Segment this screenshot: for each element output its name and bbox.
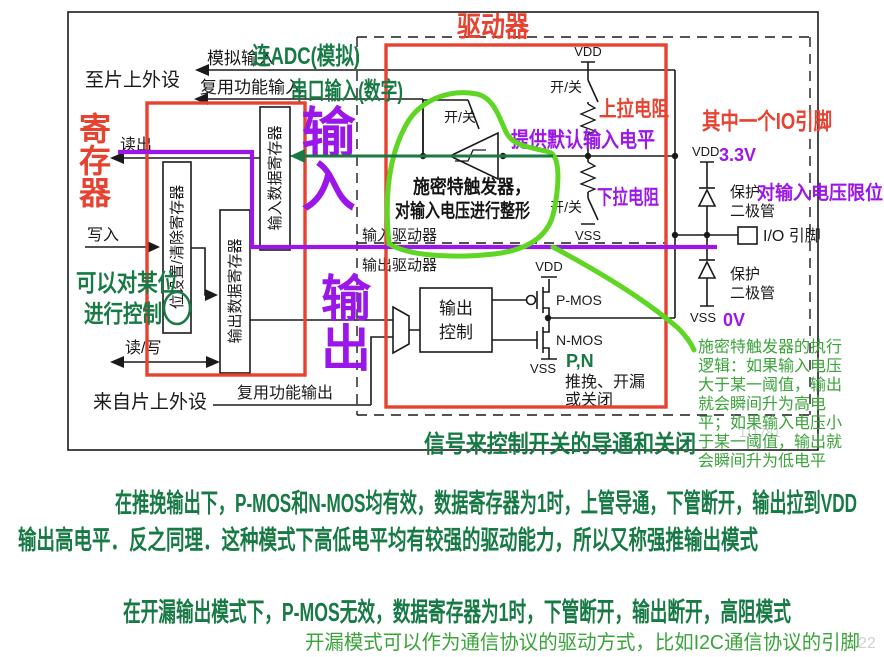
push-pull-label: 推挽、开漏 (565, 373, 645, 391)
schmitt-logic-line-1: 施密特触发器的执行 (698, 338, 842, 356)
open-drain-paragraph: 在开漏输出模式下，P-MOS无效，数据寄存器为1时，下管断开，输出断开，高阻模式 (123, 597, 791, 627)
driver-red-note: 驱动器 (457, 11, 530, 42)
pmos-label: P-MOS (556, 292, 602, 308)
pmos-symbol (537, 277, 557, 318)
nmos-symbol (492, 318, 557, 359)
pull-down-resistor-icon (581, 162, 595, 192)
pull-up-red-note: 上拉电阻 (599, 97, 669, 121)
io-pin-square (738, 227, 757, 244)
schmitt-hand-note-2: 对输入电压进行整形 (395, 199, 530, 222)
node-dot (704, 232, 710, 238)
bit-control-note-2: 进行控制 (84, 300, 162, 328)
pull-down-purple-note: 下拉电阻 (597, 185, 659, 209)
output-stage (393, 277, 557, 359)
mux-icon (393, 307, 409, 353)
output-control-label-2: 控制 (439, 323, 473, 342)
node-dot (585, 153, 591, 159)
node-dot (672, 232, 678, 238)
vss-voltage-note: 0V (723, 310, 745, 330)
output-control-box (420, 288, 492, 352)
lower-diode-icon (699, 262, 715, 278)
input-driver-label: 输入驱动器 (362, 227, 437, 244)
read-write-left-arrowhead (110, 356, 124, 368)
bitreg-to-outreg-line (191, 248, 214, 295)
gpio-structure-figure: 至片上外设 来自片上外设 模拟输入 复用功能输入 复用功能输出 读出 写入 读/… (0, 0, 884, 657)
node-dot (545, 315, 551, 321)
pn-note: P,N (566, 351, 594, 371)
af-input-label: 复用功能输入 (200, 78, 302, 97)
write-arrowhead (147, 241, 160, 253)
vdd-voltage-note: 3.3V (719, 145, 756, 165)
schmitt-logic-line-6: 于某一阈值，输出就 (698, 433, 842, 451)
pull-up-switch (581, 62, 598, 104)
output-control-label-1: 输出 (439, 299, 473, 318)
io-pin-label: I/O 引脚 (763, 227, 821, 245)
write-label: 写入 (87, 227, 119, 244)
pulldown-vss-label: VSS (575, 228, 601, 243)
switch-control-note: 信号来控制开关的导通和关闭 (424, 430, 696, 458)
nmos-vss-label: VSS (530, 361, 556, 376)
upper-protect-label-2: 二极管 (730, 203, 775, 220)
adc-note: 连ADC(模拟) (252, 42, 360, 70)
read-write-label: 读/写 (125, 339, 161, 357)
upper-diode-icon (699, 190, 715, 206)
register-red-note: 寄存器 (75, 112, 112, 208)
bit-control-note-1: 可以对某位 (76, 269, 178, 297)
schmitt-hand-note-1: 施密特触发器， (413, 175, 531, 198)
bitreg-to-outreg-arrowhead (205, 289, 218, 301)
schmitt-logic-line-5: 平；如果输入电压小 (698, 414, 842, 432)
black-hand-annotations: 施密特触发器， 对输入电压进行整形 (395, 175, 531, 222)
pin-vss-label: VSS (690, 310, 716, 325)
nmos-label: N-MOS (556, 332, 603, 348)
pullup-on-off-label: 开/关 (550, 79, 582, 95)
push-pull-paragraph-line2: 输出高电平．反之同理．这种模式下高低电平均有较强的驱动能力，所以又称强推输出模式 (18, 525, 758, 555)
watermark-fragment-tail: 22 (858, 635, 876, 652)
pmos-vdd-label: VDD (535, 259, 562, 274)
schmitt-logic-line-2: 逻辑：如果输入电压 (698, 357, 842, 375)
clamp-purple-note: 对输入电压限位 (757, 181, 883, 204)
upper-protect-label-1: 保护 (730, 184, 760, 201)
input-data-register-label: 输入数据寄存器 (266, 125, 284, 230)
trigger-on-off-label: 开/关 (444, 109, 476, 125)
to-chip-label: 至片上外设 (85, 69, 180, 91)
gpio-diagram-svg: 至片上外设 来自片上外设 模拟输入 复用功能输入 复用功能输出 读出 写入 读/… (0, 0, 884, 657)
lower-protect-label-2: 二极管 (730, 285, 775, 302)
output-driver-label: 输出驱动器 (362, 257, 437, 274)
lower-protect-label-1: 保护 (730, 266, 760, 283)
output-data-register-label: 输出数据寄存器 (226, 238, 244, 343)
schmitt-logic-line-3: 大于某一阈值，输出 (698, 376, 842, 394)
pin-vdd-label: VDD (692, 144, 719, 159)
open-drain-typed-note: 开漏模式可以作为通信协议的驱动方式，比如I2C通信协议的引脚 (305, 631, 860, 654)
pmos-bubble-icon (527, 296, 536, 305)
push-pull-paragraph-line1: 在推挽输出下，P-MOS和N-MOS均有效，数据寄存器为1时，上管导通，下管断开… (115, 488, 857, 518)
node-dot (672, 153, 678, 159)
af-output-label: 复用功能输出 (237, 384, 333, 402)
output-purple-note: 输出 (314, 272, 370, 372)
schmitt-logic-line-4: 就会瞬间升为高电 (698, 395, 826, 413)
serial-input-note: 串口输入(数字) (291, 77, 403, 105)
from-chip-label: 来自片上外设 (93, 391, 207, 413)
io-pin-red-note: 其中一个IO引脚 (702, 108, 832, 134)
read-write-right-arrowhead (206, 356, 220, 368)
schmitt-logic-line-7: 会瞬间升为低电平 (698, 452, 826, 470)
